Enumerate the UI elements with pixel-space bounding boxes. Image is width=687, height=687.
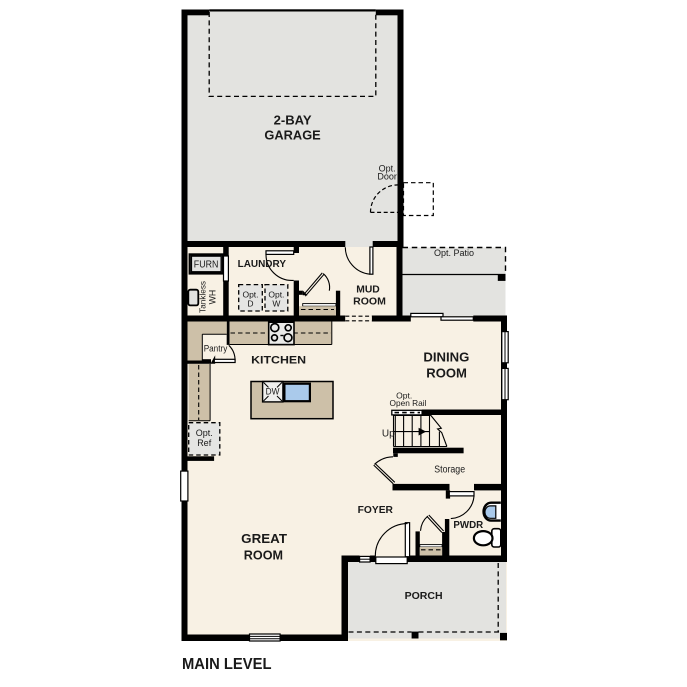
svg-text:PORCH: PORCH	[405, 591, 443, 602]
svg-text:Opt.: Opt.	[196, 428, 213, 438]
svg-text:2-BAY: 2-BAY	[274, 114, 313, 128]
svg-text:Opt. Patio: Opt. Patio	[434, 248, 474, 258]
svg-text:ROOM: ROOM	[244, 549, 283, 563]
svg-text:W: W	[272, 298, 280, 308]
svg-text:Ref: Ref	[197, 438, 212, 448]
svg-text:Tankless: Tankless	[199, 281, 208, 313]
svg-text:MUD: MUD	[356, 284, 380, 296]
svg-text:FOYER: FOYER	[358, 505, 394, 516]
svg-text:LAUNDRY: LAUNDRY	[238, 259, 287, 270]
svg-text:PWDR: PWDR	[453, 520, 483, 531]
svg-text:D: D	[247, 298, 253, 308]
svg-text:Open Rail: Open Rail	[390, 398, 427, 408]
svg-text:GREAT: GREAT	[241, 532, 287, 546]
svg-text:KITCHEN: KITCHEN	[251, 355, 306, 367]
svg-text:Storage: Storage	[434, 464, 465, 475]
svg-text:ROOM: ROOM	[426, 367, 467, 381]
svg-text:Pantry: Pantry	[204, 343, 228, 353]
svg-text:WH: WH	[208, 290, 218, 305]
svg-text:Door: Door	[377, 172, 397, 182]
svg-text:MAIN LEVEL: MAIN LEVEL	[182, 656, 272, 673]
svg-text:ROOM: ROOM	[353, 296, 386, 308]
svg-text:FURN: FURN	[194, 259, 219, 270]
svg-text:DINING: DINING	[423, 350, 469, 364]
svg-text:GARAGE: GARAGE	[264, 129, 320, 143]
svg-text:Up: Up	[382, 428, 395, 439]
svg-text:DW: DW	[266, 387, 280, 397]
